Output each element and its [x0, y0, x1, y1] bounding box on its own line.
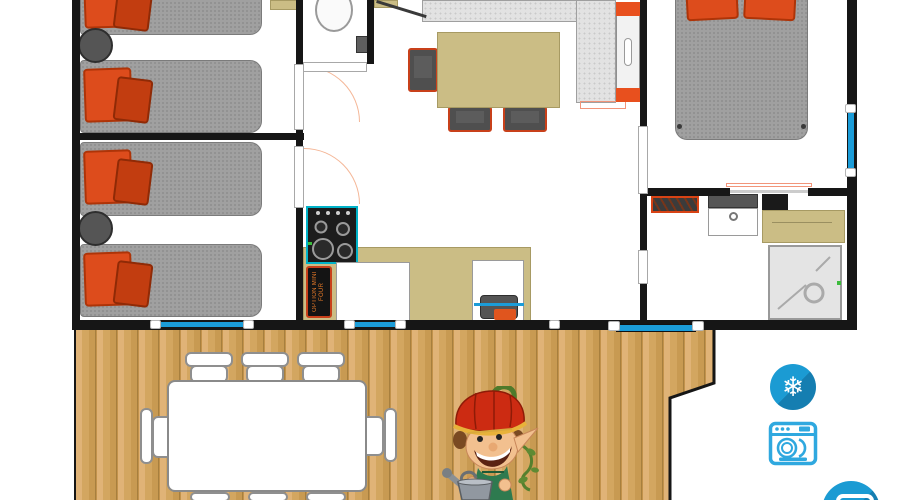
window [848, 112, 854, 170]
screen-glyph [836, 494, 874, 500]
outdoor-table [167, 380, 367, 492]
door-swing-arc [304, 66, 360, 122]
option-mini-four-label: OPTION MINI FOUR [308, 268, 330, 316]
door-swing-arc [304, 148, 360, 204]
air-conditioning-badge: ❄ [770, 364, 816, 410]
fridge-accent [616, 88, 640, 102]
wc-door [303, 62, 367, 72]
wall-master-bedroom [640, 194, 647, 250]
floor-plan-canvas: ❄ [0, 0, 900, 500]
entrance-door-leaf [376, 0, 427, 18]
wall-master-bedroom [640, 0, 647, 126]
outdoor-chair-seat [190, 492, 230, 500]
bed-foot [801, 124, 806, 129]
towel-radiator [651, 196, 699, 213]
mascot-elf-illustration [438, 386, 548, 500]
window-cap [243, 320, 254, 329]
window-cap [845, 168, 856, 177]
window [352, 322, 398, 327]
mirror [708, 194, 758, 208]
window-cap [692, 321, 704, 331]
wall-corridor [296, 130, 303, 146]
pillow [112, 76, 153, 124]
window-cap [395, 320, 406, 329]
wall-corridor [296, 0, 303, 64]
pillow [112, 260, 153, 308]
rounded-screen-icon [822, 481, 880, 500]
dining-chair [448, 106, 492, 132]
bedroom-door [294, 146, 304, 208]
fridge-accent [616, 2, 640, 16]
bedside-table [78, 211, 113, 246]
bathroom-counter [762, 210, 845, 243]
bedside-table [78, 28, 113, 63]
kitchen-worktop [422, 0, 578, 22]
pillow [743, 0, 797, 21]
wall-master-bedroom [640, 284, 647, 322]
window-cap [549, 320, 560, 329]
sink-accent [494, 309, 516, 320]
dining-chair [503, 106, 547, 132]
window [158, 322, 246, 327]
wall-bedroom-divider [72, 133, 304, 140]
snowflake-icon: ❄ [770, 364, 816, 410]
dining-table [437, 32, 560, 108]
kitchen-worktop [576, 0, 616, 103]
bedroom-door [294, 64, 304, 130]
wall-corridor [296, 208, 303, 322]
pillow [685, 0, 739, 21]
bay-window-to-deck [616, 324, 696, 332]
wall-left [72, 0, 80, 330]
shower-symbol [768, 245, 842, 320]
window-cap [344, 320, 355, 329]
dining-chair [408, 48, 438, 92]
window-line [474, 303, 524, 306]
door-swing-line [580, 101, 626, 109]
wall-bathroom [640, 188, 730, 196]
bathroom-door [638, 250, 648, 284]
undercounter-appliance [336, 262, 410, 322]
toilet [315, 0, 353, 32]
fridge-handle [624, 38, 632, 66]
pillow [112, 158, 153, 206]
sliding-door-track [730, 190, 808, 193]
window-cap [845, 104, 856, 113]
outdoor-chair-seat [248, 492, 288, 500]
option-mini-four-box: OPTION MINI FOUR [306, 266, 332, 318]
wall-wc [367, 0, 374, 64]
counter-line [772, 222, 832, 223]
outdoor-chair-seat [306, 492, 346, 500]
wall-bathroom [808, 188, 857, 196]
master-bedroom-door [638, 126, 648, 194]
outdoor-chair-back [384, 408, 397, 462]
pillow [113, 0, 154, 32]
window-cap [608, 321, 620, 331]
washbasin-drain [729, 212, 738, 221]
cooktop [306, 206, 358, 264]
door-swing-line [726, 183, 812, 187]
window-cap [150, 320, 161, 329]
dishwasher-icon [768, 421, 818, 467]
bed-foot [677, 124, 682, 129]
